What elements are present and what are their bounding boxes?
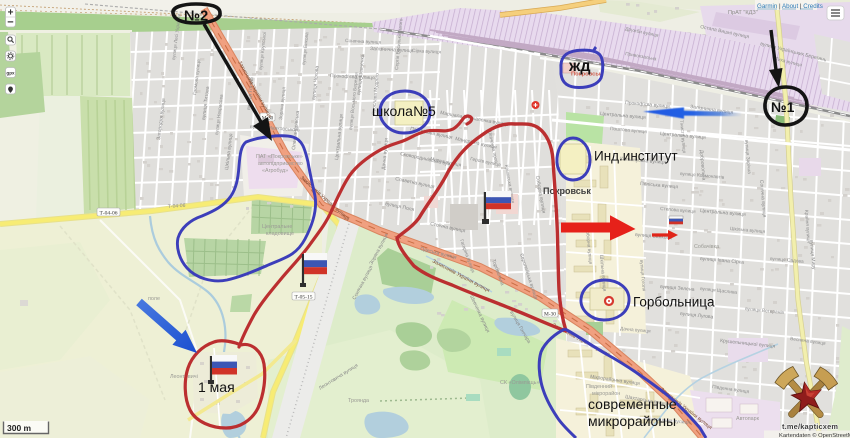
svg-text:Троянда: Троянда (348, 398, 369, 404)
svg-text:современные: современные (588, 396, 677, 412)
svg-text:Південний: Південний (586, 383, 612, 390)
svg-text:Леонтовичі: Леонтовичі (170, 374, 198, 380)
svg-text:школа№5: школа№5 (372, 103, 436, 119)
svg-text:Kartendaten © OpenStreetMap: Kartendaten © OpenStreetMap (779, 432, 850, 438)
svg-text:gpx: gpx (6, 71, 15, 76)
svg-text:Автопарк: Автопарк (736, 416, 760, 422)
svg-text:Инд.институт: Инд.институт (594, 149, 678, 164)
svg-text:№2: №2 (184, 9, 208, 25)
svg-text:Центральне: Центральне (262, 224, 292, 230)
svg-text:Покровськ: Покровськ (543, 186, 591, 196)
svg-text:Горбольница: Горбольница (633, 295, 715, 310)
svg-text:Т-04-06: Т-04-06 (99, 211, 117, 217)
svg-text:СК «Олімпієць»: СК «Олімпієць» (500, 380, 539, 386)
svg-text:ПАТ «Покровське»: ПАТ «Покровське» (256, 154, 303, 160)
svg-text:Собачівка: Собачівка (694, 244, 719, 250)
svg-text:Т-05-15: Т-05-15 (294, 295, 312, 301)
svg-text:−: − (7, 16, 13, 28)
svg-text:t.me/kapticxem: t.me/kapticxem (782, 422, 838, 431)
svg-text:1 мая: 1 мая (198, 379, 235, 395)
svg-text:«Агробуд»: «Агробуд» (262, 168, 288, 174)
svg-text:М-30: М-30 (544, 312, 556, 318)
svg-text:кладовище: кладовище (266, 231, 294, 237)
svg-text:ПрАТ "КДЗ": ПрАТ "КДЗ" (728, 10, 758, 16)
svg-text:автопідприємство: автопідприємство (258, 161, 303, 167)
svg-text:поле: поле (148, 296, 160, 302)
svg-text:жд: жд (568, 58, 591, 75)
svg-text:Т-04-06: Т-04-06 (168, 203, 186, 210)
svg-text:300 m: 300 m (7, 423, 32, 433)
svg-text:микрорайоны: микрорайоны (588, 413, 676, 429)
svg-text:№1: №1 (771, 99, 795, 115)
